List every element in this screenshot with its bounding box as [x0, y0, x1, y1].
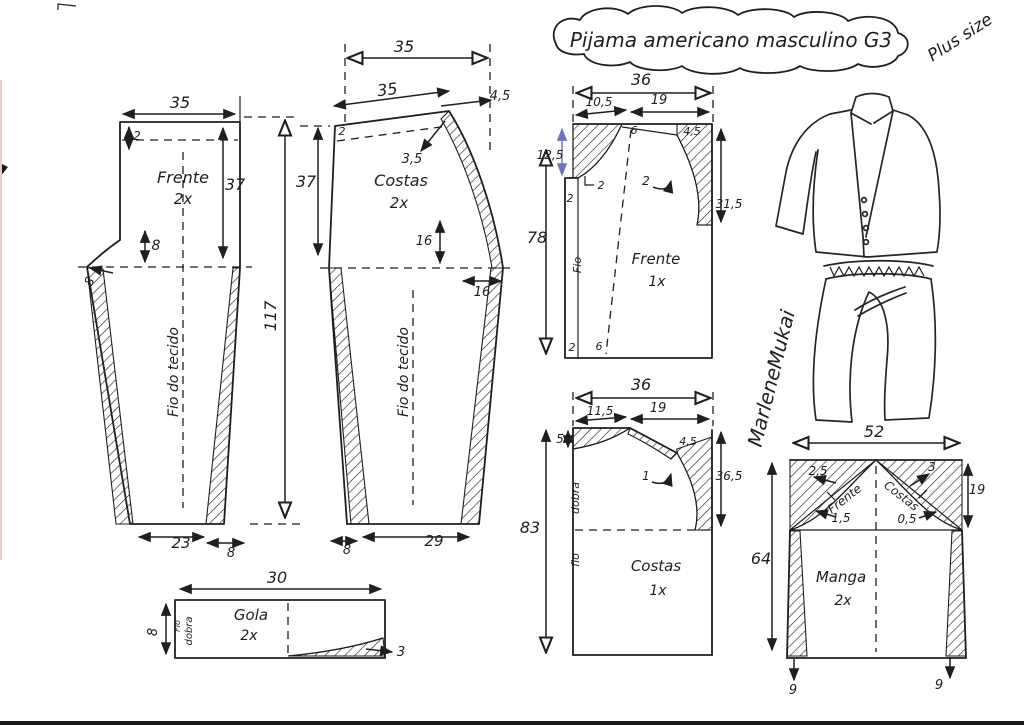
pants-back-curve-height: 16 [416, 234, 433, 249]
shirt-back-qty: 1x [649, 583, 667, 599]
neckline-hatch [573, 124, 622, 178]
sleeve-cap-front-dip: 1,5 [831, 511, 850, 525]
piece-shirt-back [546, 392, 721, 655]
lapel-roll-line [606, 130, 631, 354]
jacket-button [864, 240, 869, 245]
sleeve-width: 52 [864, 422, 884, 441]
cap-hatch-back [876, 460, 962, 530]
shirt-front-placket: 2 [567, 192, 574, 205]
pants-front-grain: Fio do tecido [166, 327, 182, 417]
shirt-back-fold: dobra [569, 482, 582, 514]
shirt-back-name: Costas [631, 557, 682, 575]
shirt-back-neck-width: 11,5 [587, 404, 614, 418]
shirt-front-hem-placket: 2 [569, 341, 576, 354]
pants-back-crotch-ext: 16 [474, 285, 491, 300]
collar-point: 3 [397, 645, 405, 660]
pants-back-name: Costas [374, 171, 428, 190]
pattern-title: Pijama americano masculino G3 [570, 28, 892, 52]
jacket-button [864, 226, 869, 231]
dimension-labels: 352Frente2x3788Fio do tecido11723835354,… [82, 37, 986, 698]
shirt-back-width: 36 [631, 375, 651, 394]
title-cloud: Pijama americano masculino G3 [554, 6, 908, 74]
scanned-pattern-page: Pijama americano masculino G3 Plus size [0, 0, 1024, 725]
dim-10-5 [576, 110, 626, 115]
shirt-front-neck-depth: 12,5 [537, 148, 564, 162]
jacket-shoulders [830, 110, 908, 115]
seam-allowance-hatch [329, 268, 369, 524]
sleeve-cap-height: 19 [969, 483, 986, 498]
jacket-button [862, 198, 867, 203]
seam-allowance-hatch [787, 531, 807, 656]
shirt-back-armhole-drop: 4,5 [679, 435, 697, 448]
pants-legs [813, 279, 935, 422]
pants-front-rise: 37 [225, 175, 246, 194]
shirt-front-width: 36 [631, 70, 651, 89]
arrow-4-5 [441, 100, 491, 106]
collar-qty: 2x [240, 628, 258, 644]
pants-front-hip-drop: 8 [152, 238, 161, 254]
pants-back-width-top: 35 [394, 37, 414, 56]
collar-grain: Fio [173, 620, 182, 632]
arrow-1-armhole [652, 474, 671, 483]
shirt-front-grain: Fio [571, 257, 584, 273]
pants-front-name: Frente [157, 168, 209, 187]
scan-edge-bottom [0, 721, 1024, 725]
sleeve-name: Manga [816, 568, 866, 586]
shirt-front-shoulder: 19 [651, 93, 668, 108]
jacket-lapels [851, 111, 893, 237]
collar-name: Gola [234, 606, 268, 624]
jacket-sleeve-left [776, 114, 830, 234]
shirt-front-armhole-drop: 4,5 [683, 125, 701, 138]
piece-sleeve [772, 443, 968, 680]
armhole-hatch [677, 124, 712, 225]
pants-front-casing: 2 [133, 129, 141, 143]
jacket-button [863, 212, 868, 217]
pants-back-rise-raise: 4,5 [490, 89, 511, 104]
collar-fold: dobra [184, 616, 195, 645]
pants-back-grain: Fio do tecido [396, 327, 412, 417]
seam-allowance-hatch [206, 268, 240, 524]
sleeve-cap-front-raise: 2,5 [808, 464, 827, 478]
piece-collar [166, 589, 392, 658]
shirt-back-neck-drop: 5 [556, 432, 564, 446]
shirt-front-shoulder-drop: 6 [631, 124, 638, 137]
pants-front-qty: 2x [174, 190, 193, 208]
sleeve-qty: 2x [834, 593, 852, 609]
shirt-front-qty: 1x [648, 274, 666, 290]
shirt-front-length: 78 [527, 228, 547, 247]
pen-scribble [855, 287, 906, 316]
arrow-2-armhole [653, 181, 671, 189]
shirt-front-name: Frente [632, 250, 681, 268]
seam-allowance-hatch [87, 267, 133, 524]
pants-back-corner: 3,5 [402, 152, 423, 167]
pants-back-hem-allow: 8 [343, 543, 351, 558]
collar-width: 30 [267, 568, 287, 587]
sleeve-length: 64 [751, 549, 771, 568]
sleeve-cap-back-raise: 3 [928, 460, 936, 474]
shirt-front-notch: 2 [598, 179, 605, 192]
seam-allowance-hatch [461, 268, 503, 524]
sleeve-hem-left: 9 [789, 683, 797, 698]
pajama-illustration [776, 94, 940, 423]
seam-allowance-hatch [288, 638, 385, 656]
pants-back-width-slant: 35 [376, 79, 399, 100]
shirt-front-neck-width: 10,5 [586, 95, 613, 109]
shirt-back-shoulder: 19 [650, 401, 667, 416]
arrow-3-5 [421, 121, 445, 151]
jacket-collar [851, 94, 893, 125]
shirt-back-grain: fio [569, 553, 582, 567]
signature: MarleneMukai [743, 307, 800, 449]
shirt-back-armhole-curve: 1 [642, 469, 650, 483]
sleeve-cap-back-dip: 0,5 [897, 512, 916, 526]
shirt-front-armhole-depth: 31,5 [716, 197, 743, 211]
seam-allowance-hatch [946, 531, 966, 656]
pants-back-qty: 2x [390, 194, 409, 212]
notch-mark [585, 176, 594, 185]
shoulder-hatch [628, 428, 677, 459]
scan-mark-topleft [58, 4, 76, 10]
plus-size-tag: Plus size [924, 10, 996, 67]
shirt-back-armhole-depth: 36,5 [716, 469, 743, 483]
pants-length: 117 [261, 300, 280, 331]
pants-front-hem: 23 [171, 534, 190, 552]
sleeve-hem-right: 9 [935, 678, 943, 693]
collar-height: 8 [146, 628, 161, 636]
pants-back-casing: 2 [339, 125, 346, 138]
pants-back-hem: 29 [424, 532, 443, 550]
seam-allowance-hatch [441, 111, 503, 268]
armhole-hatch [677, 437, 712, 530]
neckline-hatch [573, 428, 630, 449]
pants-front-hem-allow: 8 [227, 546, 235, 561]
shirt-back-length: 83 [520, 518, 540, 537]
shirt-front-armhole-curve: 2 [642, 174, 650, 188]
pants-back-rise: 37 [296, 172, 317, 191]
pants-front-width: 35 [170, 93, 190, 112]
shirt-front-hem-facing: 6 [596, 340, 603, 353]
